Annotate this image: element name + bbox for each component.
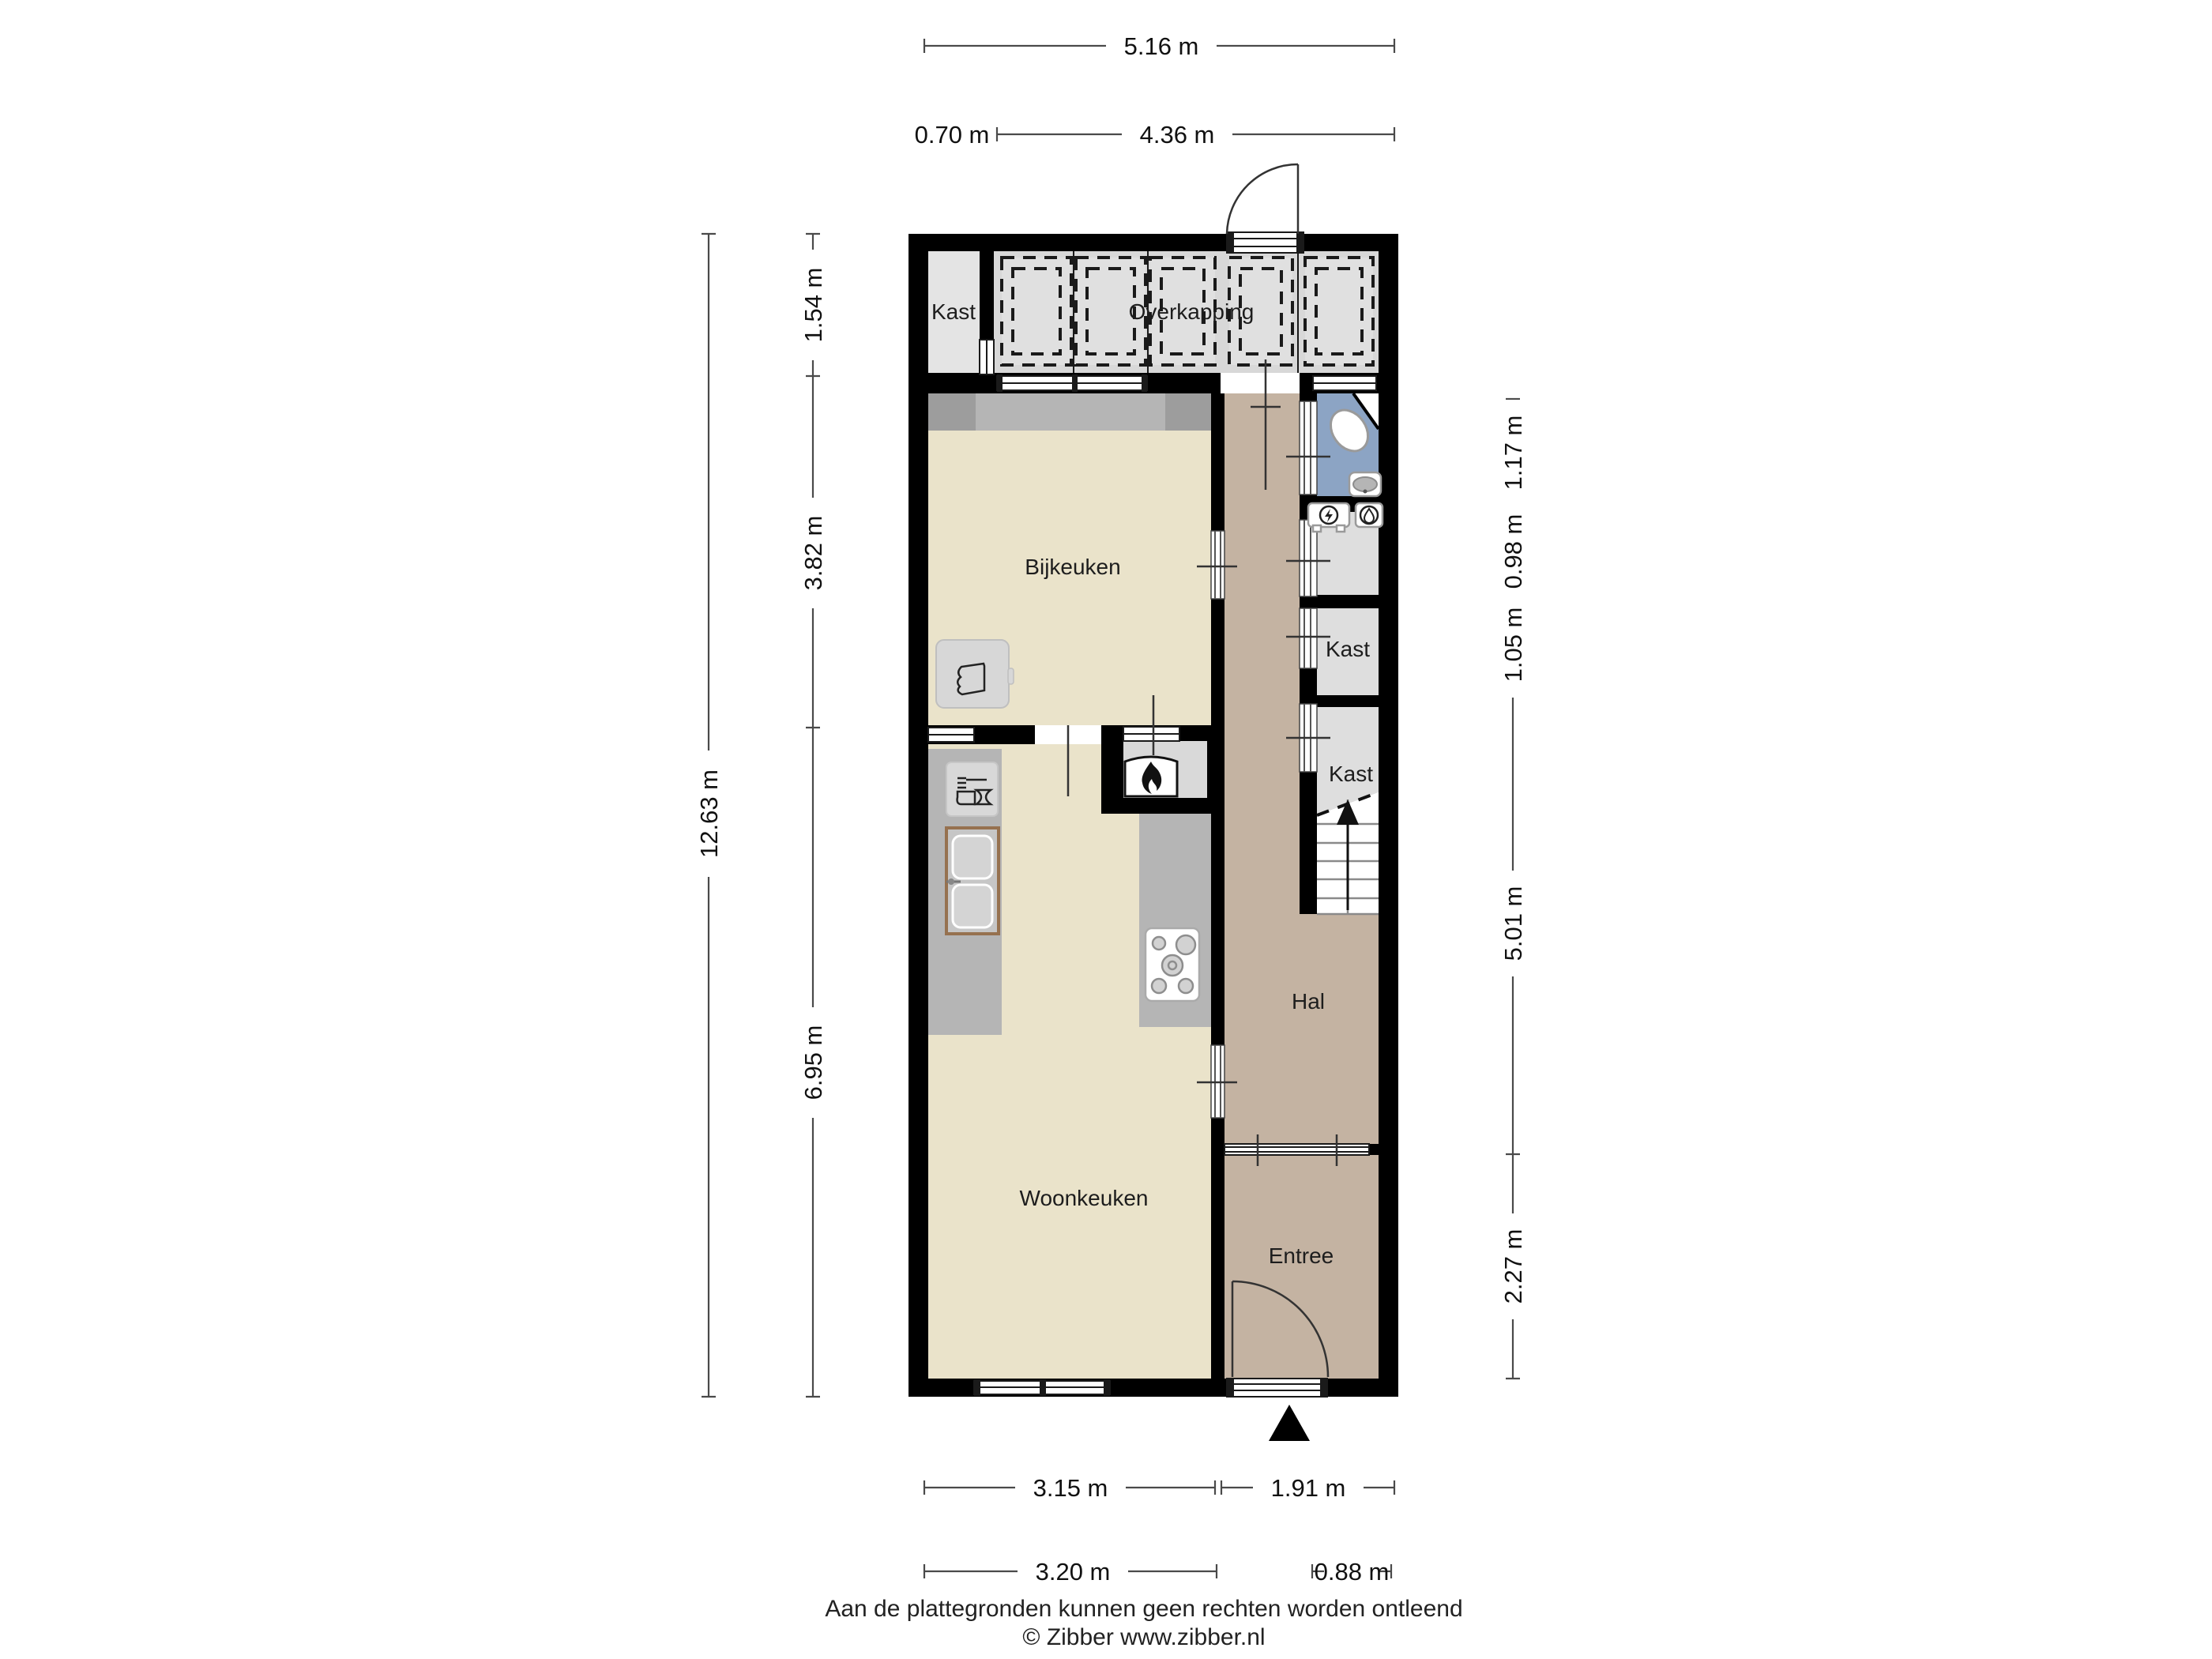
electric-meter-icon <box>1308 503 1349 532</box>
label-bijkeuken: Bijkeuken <box>1025 555 1120 579</box>
footer: Aan de plattegronden kunnen geen rechten… <box>825 1596 1462 1650</box>
svg-text:5.01 m: 5.01 m <box>1499 886 1527 961</box>
label-hal: Hal <box>1292 989 1325 1014</box>
footer-copyright: © Zibber www.zibber.nl <box>1022 1624 1265 1650</box>
svg-text:0.98 m: 0.98 m <box>1499 514 1527 589</box>
label-kast-top: Kast <box>931 299 976 324</box>
dim-right-hal: 5.01 m <box>1499 871 1527 976</box>
kast-overkapping-window <box>980 340 994 374</box>
svg-text:0.88 m: 0.88 m <box>1315 1558 1390 1586</box>
toilet-rear-window <box>1313 376 1376 390</box>
dim-left-woonkeuken: 6.95 m <box>799 1007 827 1118</box>
footer-disclaimer: Aan de plattegronden kunnen geen rechten… <box>825 1596 1462 1622</box>
room-hal-lower <box>1224 914 1379 1144</box>
kitchen-sink-icon <box>946 828 999 934</box>
glazed-strip <box>1123 727 1179 741</box>
hal-overkapping-passage <box>1221 373 1300 393</box>
svg-text:1.54 m: 1.54 m <box>799 268 827 343</box>
svg-text:0.70 m: 0.70 m <box>915 121 990 149</box>
bijkeuken-rear-windows <box>997 374 1147 392</box>
svg-text:6.95 m: 6.95 m <box>799 1025 827 1100</box>
svg-text:1.05 m: 1.05 m <box>1499 608 1527 683</box>
dim-right-toilet: 1.17 m <box>1499 400 1527 506</box>
dim-top-kast: 0.70 m <box>915 121 990 149</box>
gas-hob-icon <box>1145 928 1199 1001</box>
svg-text:12.63 m: 12.63 m <box>695 769 723 858</box>
entrance-marker-icon <box>1269 1405 1310 1441</box>
handwash-basin-icon <box>1349 472 1381 496</box>
dim-right-meterkast: 0.98 m <box>1499 498 1527 604</box>
floorplan-page: Kast Overkapping Bijkeuken Kast Kast Hal… <box>0 0 2212 1659</box>
label-entree: Entree <box>1269 1243 1334 1268</box>
dim-right-entree: 2.27 m <box>1499 1213 1527 1319</box>
dim-bottom-entree: 0.88 m <box>1312 1558 1391 1586</box>
water-meter-icon <box>1356 503 1382 527</box>
room-hal-corridor <box>1224 393 1300 914</box>
svg-text:4.36 m: 4.36 m <box>1140 121 1215 149</box>
label-overkapping: Overkapping <box>1129 299 1255 324</box>
svg-text:5.16 m: 5.16 m <box>1124 32 1199 60</box>
dim-top-total: 5.16 m <box>924 32 1394 60</box>
label-kast-1: Kast <box>1326 637 1370 661</box>
floorplan-canvas: Kast Overkapping Bijkeuken Kast Kast Hal… <box>0 0 2212 1659</box>
svg-text:1.17 m: 1.17 m <box>1499 416 1527 491</box>
overkapping-door-swing <box>1227 164 1298 234</box>
dim-right-chain: 1.17 m 0.98 m 1.05 m 5.01 m 2.27 m <box>1499 399 1527 1379</box>
label-kast-2: Kast <box>1329 762 1373 786</box>
dim-left-bijkeuken: 3.82 m <box>799 498 827 608</box>
washing-machine-icon <box>936 640 1014 708</box>
dim-left-chain: 1.54 m 3.82 m 6.95 m <box>799 234 827 1397</box>
dim-left-total: 12.63 m <box>694 234 723 1397</box>
dim-top-overkapping: 4.36 m <box>997 120 1394 149</box>
dim-left-overkapping: 1.54 m <box>799 250 827 360</box>
svg-text:2.27 m: 2.27 m <box>1499 1229 1527 1304</box>
bijkeuken-woonkeuken-window <box>928 728 974 742</box>
dim-bottom-woonkeuken: 3.15 m <box>924 1473 1215 1502</box>
bijkeuken-counter <box>928 393 1211 431</box>
dishwasher-icon <box>946 762 998 816</box>
svg-text:3.15 m: 3.15 m <box>1033 1474 1108 1502</box>
label-woonkeuken: Woonkeuken <box>1020 1186 1149 1210</box>
svg-text:3.20 m: 3.20 m <box>1036 1558 1111 1586</box>
svg-text:1.91 m: 1.91 m <box>1271 1474 1346 1502</box>
overkapping-door-threshold <box>1227 232 1303 253</box>
woonkeuken-front-windows <box>974 1379 1110 1396</box>
dim-right-kast: 1.05 m <box>1499 592 1527 698</box>
dim-bottom-hal: 1.91 m <box>1221 1473 1394 1502</box>
svg-text:3.82 m: 3.82 m <box>799 516 827 591</box>
dim-bottom-woonkeuken-2: 3.20 m <box>924 1557 1217 1586</box>
